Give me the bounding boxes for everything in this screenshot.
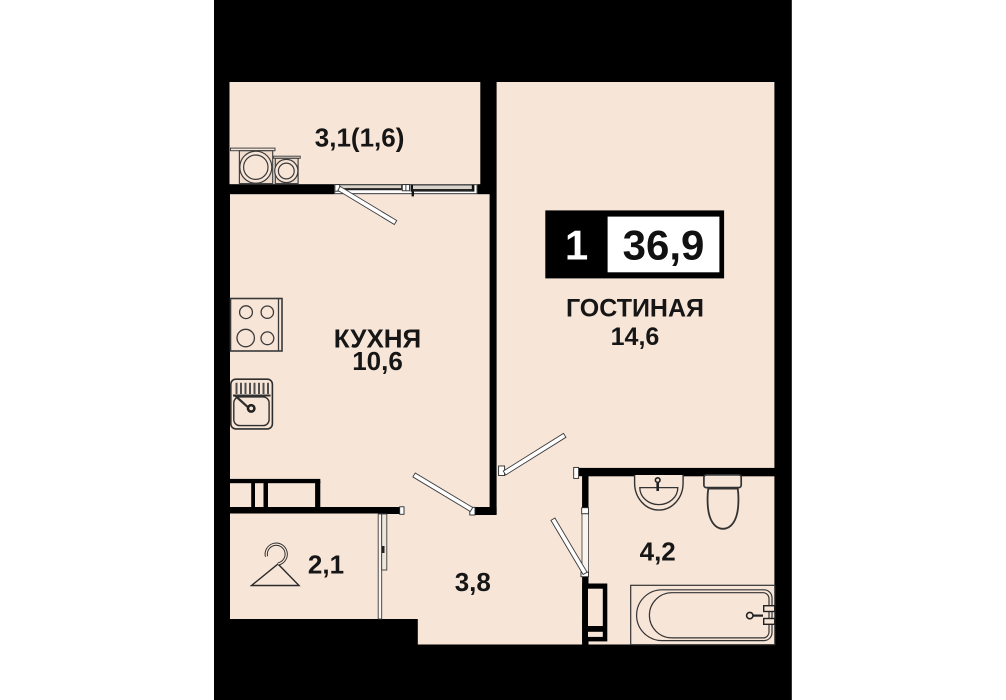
svg-text:10,6: 10,6 xyxy=(352,346,403,376)
svg-text:ГОСТИНАЯ: ГОСТИНАЯ xyxy=(566,295,704,323)
svg-text:14,6: 14,6 xyxy=(611,323,660,351)
svg-text:4,2: 4,2 xyxy=(640,537,676,567)
svg-text:36,9: 36,9 xyxy=(623,222,705,269)
svg-text:3,8: 3,8 xyxy=(455,567,491,597)
svg-text:1: 1 xyxy=(565,222,588,269)
svg-text:3,1(1,6): 3,1(1,6) xyxy=(315,122,405,152)
svg-text:2,1: 2,1 xyxy=(308,550,344,580)
